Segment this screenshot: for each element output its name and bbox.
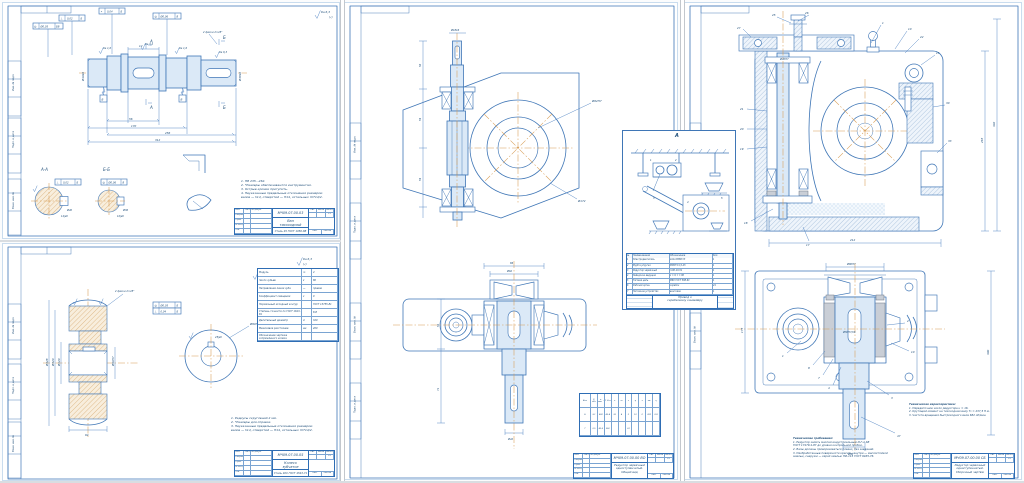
svg-text:Ra 3,2: Ra 3,2 bbox=[145, 42, 153, 46]
svg-text:Инв. № подл.: Инв. № подл. bbox=[11, 317, 15, 334]
title-block-right: Лит.МассаМасштаб 1:1 ЛистЛистов bbox=[308, 209, 334, 234]
svg-text:Ra 6,3: Ra 6,3 bbox=[321, 10, 330, 14]
shaft-title-block: Изм.Лист№ докум. Разраб. Пров. Н.контр. … bbox=[234, 208, 335, 235]
shaft-notes: 1. НВ 235...262.2. *Размеры обеспечивают… bbox=[241, 179, 335, 199]
svg-text:56: 56 bbox=[418, 63, 422, 67]
gear-parameter-row: Коэффициент смещенияx0 bbox=[258, 293, 338, 301]
title-block-center: МЧ09.07.00.03 Валтихоходный Сталь 45 ГОС… bbox=[273, 209, 308, 234]
svg-text:0,02: 0,02 bbox=[63, 180, 69, 184]
svg-text:300: 300 bbox=[986, 349, 990, 355]
gear-parameter-row: Нормальный исходный контурГОСТ 13755-81 bbox=[258, 301, 338, 309]
svg-text:Б: Б bbox=[223, 105, 226, 110]
kinematic-scheme: 1 2 3 4 5 bbox=[623, 139, 735, 257]
margin-cells: Инв. № подл. Подп. и дата Взам. инв. № bbox=[8, 61, 21, 235]
gearing-data-table: ВалP, кВтn, мин⁻¹T, Н·мumzqxawη Б3,16824… bbox=[579, 393, 661, 437]
svg-text:Б: Б bbox=[81, 16, 83, 20]
scheme-spec-rows: 1Электродвигатель4А112МВ6 УЗ1 2Муфта упр… bbox=[626, 258, 734, 295]
plan-view: Ø80H7 Ø50H7/k6 175 300 Ø36 bbox=[735, 261, 995, 456]
svg-text:Б-Б: Б-Б bbox=[103, 167, 110, 172]
gear-parameter-row: Межосевое расстояниеaw200 bbox=[258, 325, 338, 333]
front-view: 56 59 59 Ø18k6 Ø62H7 Ø172 bbox=[403, 27, 602, 227]
svg-text:А: А bbox=[149, 105, 153, 110]
svg-text:Ø62: Ø62 bbox=[506, 268, 513, 273]
svg-text:Б: Б bbox=[177, 309, 179, 313]
svg-text:Инв. № подл.: Инв. № подл. bbox=[353, 136, 357, 153]
sheet-gear-drawing: Инв. № подл. Подп. и дата Взам. инв. № R… bbox=[2, 243, 340, 481]
svg-text:59: 59 bbox=[418, 117, 422, 121]
svg-text:56: 56 bbox=[129, 117, 133, 121]
svg-text:52: 52 bbox=[436, 323, 440, 327]
cross-section-view bbox=[739, 11, 943, 231]
gear-parameter-row: Делительный диаметрd320 bbox=[258, 317, 338, 325]
svg-text:10: 10 bbox=[908, 27, 912, 31]
svg-text:2 фаски 2×45°: 2 фаски 2×45° bbox=[203, 30, 223, 34]
svg-text:15: 15 bbox=[936, 51, 940, 55]
svg-text:Взам. инв. №: Взам. инв. № bbox=[693, 326, 697, 343]
svg-text:59: 59 bbox=[418, 177, 422, 181]
section-b-b: Б-Б ◎Ø0,06В Ø36 10js9 bbox=[95, 167, 129, 218]
svg-text:7: 7 bbox=[818, 376, 820, 380]
svg-text:10: 10 bbox=[911, 350, 915, 354]
svg-text:Ra 6,3: Ra 6,3 bbox=[303, 257, 312, 261]
svg-text:Ø320: Ø320 bbox=[50, 358, 55, 367]
gear-section-view: Ø328 Ø320 Ø120 Ø90H7 64 2 фаски 2×45° bbox=[43, 289, 139, 439]
svg-text:Ø38k6: Ø38k6 bbox=[237, 72, 242, 82]
shaft-drawing-view: Инв. № подл. Подп. и дата Взам. инв. № А… bbox=[3, 3, 341, 240]
svg-text:Ø36: Ø36 bbox=[122, 207, 129, 212]
svg-text:Ø42: Ø42 bbox=[507, 436, 514, 441]
svg-text:27: 27 bbox=[737, 26, 741, 30]
svg-text:(√): (√) bbox=[303, 262, 307, 266]
svg-text:Б: Б bbox=[177, 303, 179, 307]
svg-text:Ra 6,3: Ra 6,3 bbox=[219, 50, 227, 54]
svg-text:Ø18k6: Ø18k6 bbox=[450, 27, 460, 32]
svg-text:Ra 1,6: Ra 1,6 bbox=[179, 46, 187, 50]
drawing-set-canvas: Инв. № подл. Подп. и дата Взам. инв. № А… bbox=[0, 0, 1024, 483]
svg-text:3: 3 bbox=[891, 396, 893, 400]
svg-text:212: 212 bbox=[850, 238, 856, 242]
svg-text:Б: Б bbox=[223, 35, 226, 40]
svg-text:Подп. и дата: Подп. и дата bbox=[11, 131, 15, 148]
gear-face-view: Ø90H7 ◎Ø0,05Б ⊥0,04Б 25js9 bbox=[153, 302, 260, 388]
svg-text:1: 1 bbox=[782, 354, 784, 358]
svg-text:Ø172: Ø172 bbox=[577, 198, 586, 203]
svg-text:33: 33 bbox=[948, 139, 952, 143]
svg-text:22: 22 bbox=[920, 35, 924, 39]
svg-text:26: 26 bbox=[805, 11, 809, 15]
svg-text:10js9: 10js9 bbox=[117, 214, 124, 218]
svg-text:4: 4 bbox=[828, 386, 830, 390]
svg-text:302: 302 bbox=[992, 121, 996, 127]
svg-text:В: В bbox=[123, 180, 125, 184]
svg-text:17: 17 bbox=[806, 243, 810, 247]
svg-text:1: 1 bbox=[882, 21, 884, 25]
svg-text:64: 64 bbox=[85, 433, 89, 437]
gear-notes: 1. Радиусы скруглений 2 мм.2. *Размеры д… bbox=[231, 416, 331, 432]
svg-text:Подп. и дата: Подп. и дата bbox=[11, 377, 15, 394]
gear-title-block: Изм.Лист№ докум. Разраб. Пров. Н.контр. … bbox=[234, 450, 335, 477]
svg-text:8: 8 bbox=[808, 366, 810, 370]
svg-text:В: В bbox=[177, 14, 179, 18]
title-block-left: Изм.Лист№ докум. Разраб. Пров. Н.контр. … bbox=[235, 209, 273, 234]
shaft-main-view bbox=[79, 54, 247, 92]
svg-text:БВ: БВ bbox=[56, 24, 60, 28]
svg-text:256: 256 bbox=[165, 131, 171, 135]
svg-text:Б: Б bbox=[102, 98, 104, 102]
svg-text:175: 175 bbox=[740, 327, 744, 333]
sheet-shaft-drawing: Инв. № подл. Подп. и дата Взам. инв. № А… bbox=[2, 2, 340, 239]
svg-text:Подп. и дата: Подп. и дата bbox=[353, 396, 357, 413]
gear-parameter-row: Обозначение чертежа сопряжённого колеса bbox=[258, 333, 338, 341]
svg-text:Ø62H7: Ø62H7 bbox=[591, 98, 602, 103]
gear-parameter-table: Модульm4 Число зубьевz80 Направление лин… bbox=[257, 268, 339, 342]
svg-text:19: 19 bbox=[740, 147, 744, 151]
svg-text:Б: Б bbox=[121, 9, 123, 13]
svg-text:86: 86 bbox=[510, 261, 514, 265]
reducer-gv-title-block: Изм.Лист№ докум. Разраб. Пров. Н.контр. … bbox=[573, 453, 674, 479]
assembly-title-block: Изм.Лист№ докум. Разраб. Пров. Н.контр. … bbox=[913, 453, 1015, 479]
top-view: Ø62 86 Ø42 52 74 bbox=[393, 261, 597, 449]
svg-text:0,02: 0,02 bbox=[67, 16, 73, 20]
svg-text:Взам. инв. №: Взам. инв. № bbox=[11, 435, 15, 452]
svg-text:25js9: 25js9 bbox=[215, 335, 222, 339]
svg-text:0,04: 0,04 bbox=[107, 9, 113, 13]
svg-text:Ø40: Ø40 bbox=[66, 207, 73, 212]
spec-row: 7Натяжное устройствовинтовое1 bbox=[627, 290, 733, 295]
svg-text:20: 20 bbox=[740, 127, 744, 131]
svg-text:12js9: 12js9 bbox=[61, 214, 68, 218]
svg-text:25: 25 bbox=[772, 13, 776, 17]
corner-roughness: Ra 6,3 (√) bbox=[297, 257, 312, 266]
svg-text:2 фаски 2×45°: 2 фаски 2×45° bbox=[115, 289, 135, 293]
svg-text:Б: Б bbox=[77, 180, 79, 184]
svg-text:Подп. и дата: Подп. и дата bbox=[353, 216, 357, 233]
svg-text:Ra 1,6: Ra 1,6 bbox=[103, 46, 111, 50]
svg-text:Ø328: Ø328 bbox=[44, 358, 49, 367]
svg-text:Взам. инв. №: Взам. инв. № bbox=[11, 192, 15, 209]
svg-text:(√): (√) bbox=[329, 15, 333, 19]
svg-text:3: 3 bbox=[653, 196, 655, 200]
svg-text:В: В bbox=[181, 98, 183, 102]
svg-text:18: 18 bbox=[744, 221, 748, 225]
svg-text:30: 30 bbox=[946, 101, 950, 105]
svg-text:312: 312 bbox=[155, 138, 161, 142]
gear-parameter-row: Число зубьевz80 bbox=[258, 277, 338, 285]
sheet-divider-horizontal bbox=[0, 240, 341, 242]
svg-text:Ø40k6: Ø40k6 bbox=[80, 72, 85, 82]
inset-drive-scheme-sheet: А 1 2 3 4 5 №НаименованиеОбозначениеКол. bbox=[622, 130, 736, 310]
svg-text:1: 1 bbox=[650, 158, 652, 162]
svg-text:21: 21 bbox=[740, 107, 744, 111]
svg-text:Ø80H7: Ø80H7 bbox=[846, 261, 856, 266]
section-a-a: А-А ⊥0,02Б Ø40 12js9 bbox=[31, 167, 81, 219]
svg-text:170: 170 bbox=[131, 124, 137, 128]
gear-parameter-row: Модульm4 bbox=[258, 269, 338, 277]
keyway-profile-sketches bbox=[183, 155, 211, 210]
svg-text:265: 265 bbox=[980, 137, 984, 143]
svg-text:2: 2 bbox=[907, 319, 909, 323]
svg-text:2: 2 bbox=[675, 158, 677, 162]
svg-text:А-А: А-А bbox=[40, 167, 48, 172]
svg-text:Взам. инв. №: Взам. инв. № bbox=[353, 316, 357, 333]
svg-text:0,04: 0,04 bbox=[161, 309, 167, 313]
svg-text:Инв. № подл.: Инв. № подл. bbox=[11, 74, 15, 91]
svg-text:Ø120: Ø120 bbox=[56, 358, 61, 367]
svg-text:Ø90H7: Ø90H7 bbox=[110, 356, 115, 367]
svg-text:12: 12 bbox=[139, 44, 143, 48]
gear-parameter-row: Степень точности по ГОСТ 1643-818-В bbox=[258, 309, 338, 317]
tech-characteristics: Техническая характеристика: 1. Передаточ… bbox=[909, 403, 1009, 418]
svg-text:74: 74 bbox=[436, 387, 440, 391]
gear-parameter-row: Направление линии зуба—правое bbox=[258, 285, 338, 293]
roughness-marks: Ra 1,6 Ra 3,2 Ra 1,6 Ra 6,3 Ra 6,3 (√) 2… bbox=[99, 10, 333, 58]
